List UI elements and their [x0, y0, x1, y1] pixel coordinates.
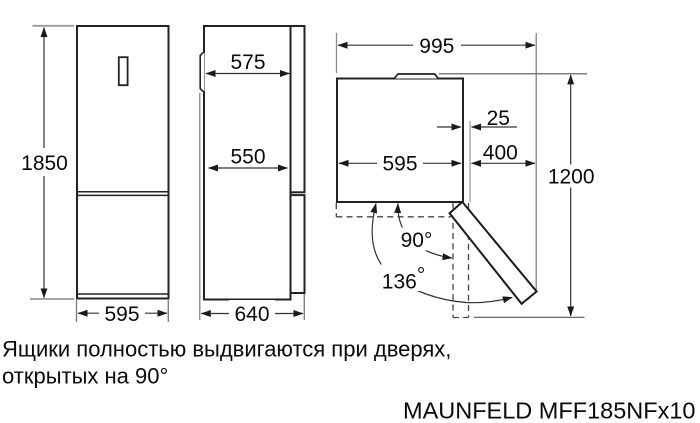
svg-text:1850: 1850 — [21, 152, 68, 175]
svg-text:995: 995 — [419, 35, 454, 58]
svg-text:1200: 1200 — [548, 165, 595, 188]
svg-text:90°: 90° — [401, 229, 433, 252]
svg-text:Ящики полностью выдвигаются пр: Ящики полностью выдвигаются при дверях, — [2, 337, 451, 362]
svg-text:MAUNFELD MFF185NFx10: MAUNFELD MFF185NFx10 — [403, 397, 696, 423]
svg-text:400: 400 — [483, 142, 518, 165]
svg-text:25: 25 — [487, 107, 510, 130]
svg-text:595: 595 — [382, 153, 417, 176]
svg-text:550: 550 — [230, 146, 265, 169]
svg-text:открытых на 90°: открытых на 90° — [2, 364, 168, 389]
svg-text:575: 575 — [230, 51, 265, 74]
svg-text:595: 595 — [104, 303, 139, 326]
svg-text:640: 640 — [234, 303, 269, 326]
